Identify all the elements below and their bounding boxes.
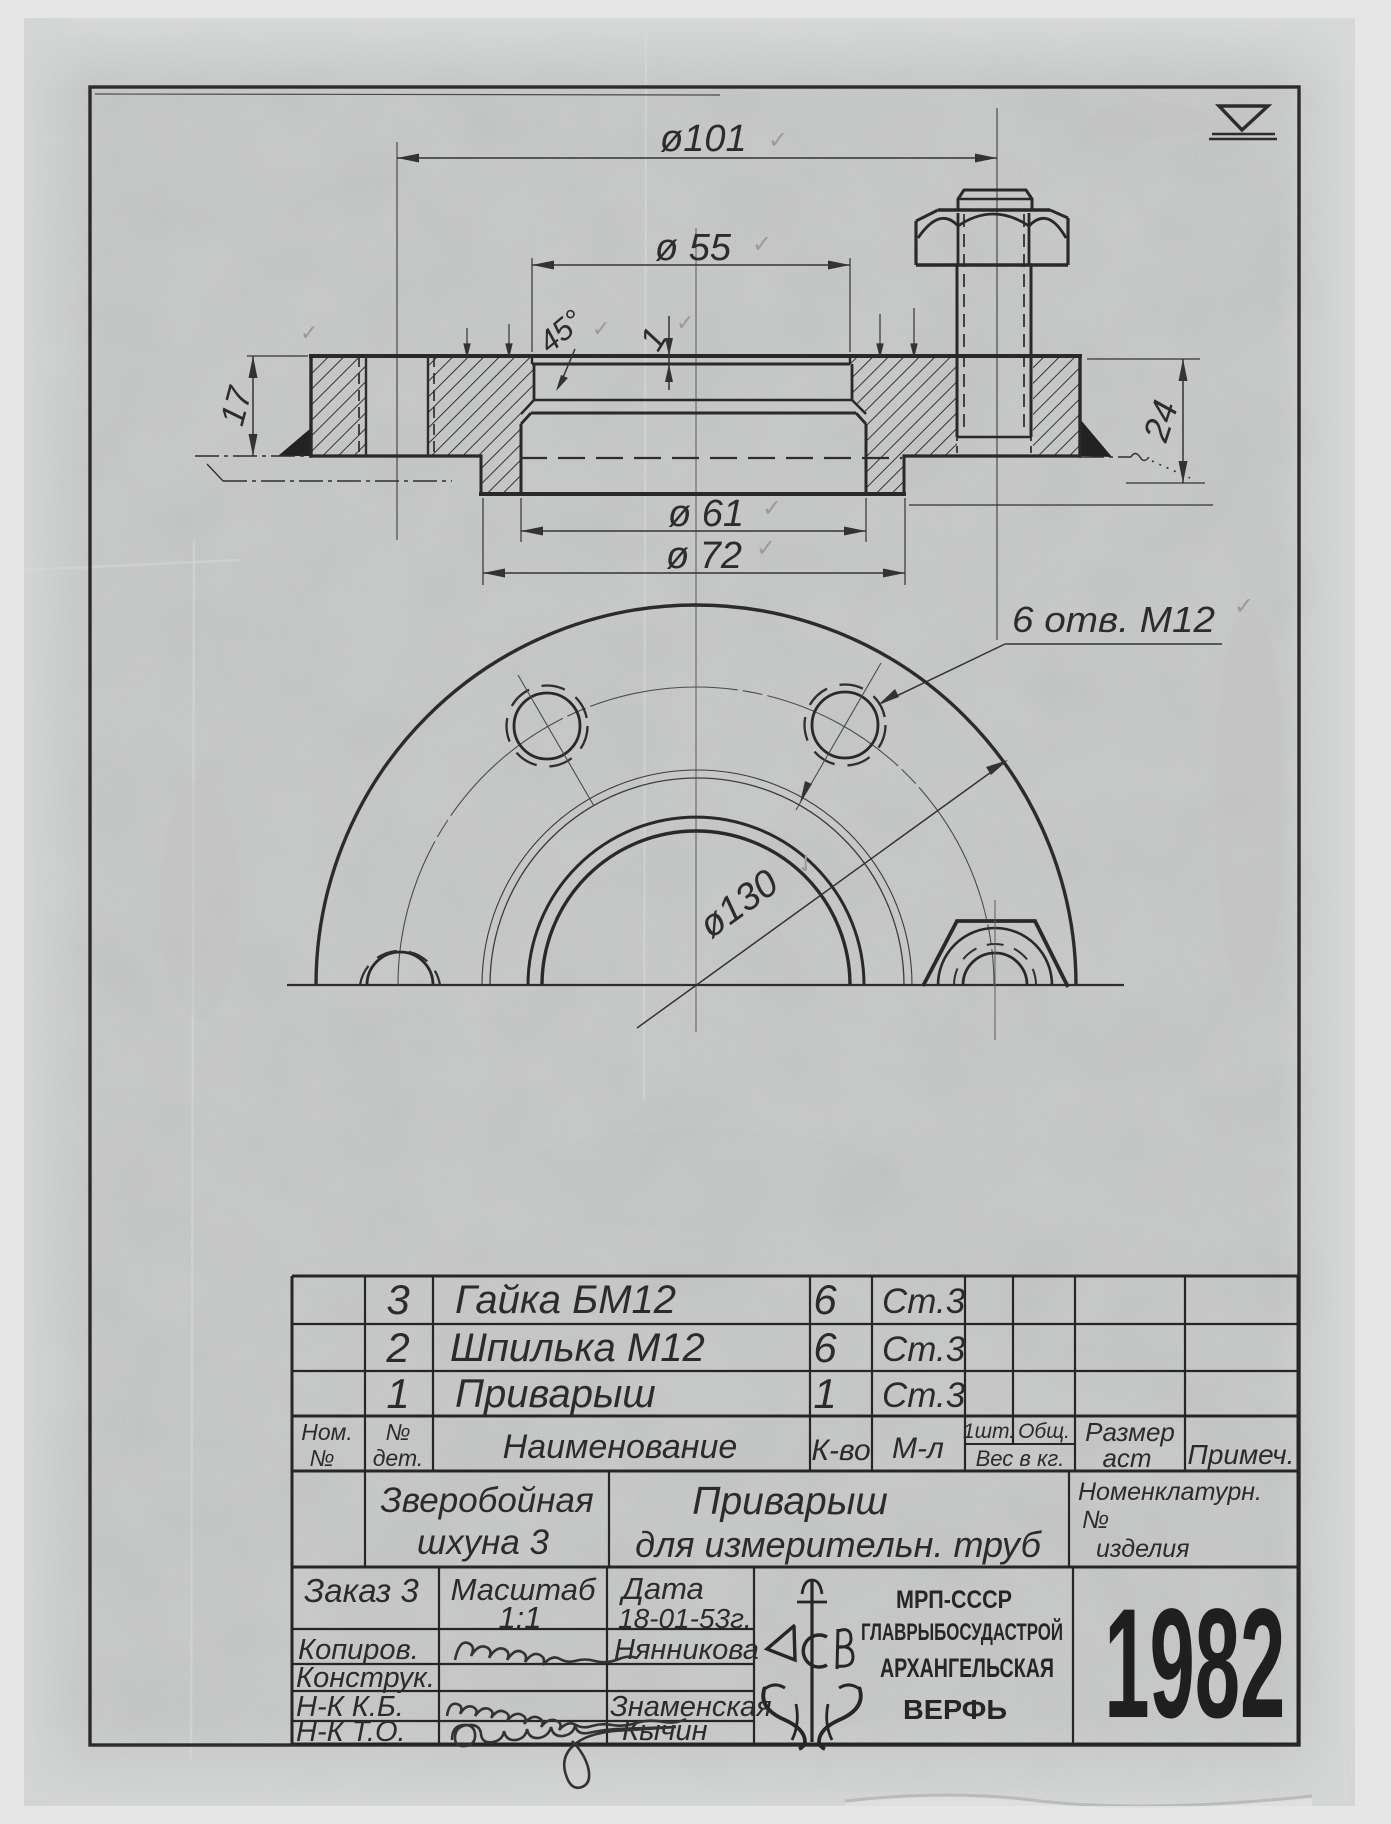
svg-text:✓: ✓ [762, 495, 782, 522]
svg-text:1шт.: 1шт. [963, 1420, 1015, 1443]
svg-text:✓: ✓ [768, 127, 788, 154]
svg-text:✓: ✓ [676, 310, 694, 335]
svg-text:Примеч.: Примеч. [1188, 1439, 1295, 1470]
svg-text:Конструк.: Конструк. [296, 1662, 435, 1694]
svg-text:Гайка БМ12: Гайка БМ12 [455, 1278, 676, 1322]
svg-text:1: 1 [386, 1370, 409, 1417]
svg-text:№: № [310, 1445, 335, 1471]
svg-text:Ст.3: Ст.3 [882, 1376, 966, 1415]
svg-text:Ст.3: Ст.3 [882, 1282, 966, 1321]
svg-text:✓: ✓ [300, 320, 318, 345]
svg-text:ø 55: ø 55 [655, 227, 732, 269]
svg-text:№: № [386, 1419, 411, 1445]
svg-text:М-л: М-л [892, 1432, 944, 1465]
svg-text:6 отв. М12: 6 отв. М12 [1012, 599, 1215, 640]
svg-text:Нянникова: Нянникова [614, 1634, 759, 1666]
svg-text:Наименование: Наименование [503, 1428, 738, 1466]
svg-text:для измерительн. труб: для измерительн. труб [635, 1524, 1043, 1565]
svg-text:дет.: дет. [373, 1445, 424, 1471]
svg-text:ВЕРФЬ: ВЕРФЬ [903, 1694, 1007, 1725]
svg-text:18-01-53г.: 18-01-53г. [618, 1603, 752, 1634]
svg-text:Номенклатурн.: Номенклатурн. [1078, 1478, 1262, 1506]
svg-text:✓: ✓ [756, 535, 776, 562]
svg-text:Приварыш: Приварыш [692, 1480, 888, 1523]
svg-text:✓: ✓ [592, 316, 610, 341]
svg-text:аст: аст [1102, 1443, 1151, 1473]
svg-text:№: № [1082, 1506, 1109, 1534]
svg-text:Шпилька М12: Шпилька М12 [450, 1326, 705, 1370]
svg-text:Вес в кг.: Вес в кг. [976, 1446, 1065, 1471]
svg-text:6: 6 [813, 1324, 837, 1371]
svg-text:изделия: изделия [1096, 1535, 1190, 1563]
svg-text:ГЛАВРЫБОСУДАСТРОЙ: ГЛАВРЫБОСУДАСТРОЙ [861, 1618, 1063, 1646]
svg-text:МРП-СССР: МРП-СССР [896, 1586, 1012, 1614]
svg-text:Дата: Дата [619, 1571, 704, 1606]
svg-text:Общ.: Общ. [1018, 1420, 1070, 1443]
svg-text:2: 2 [385, 1324, 409, 1371]
svg-text:1:1: 1:1 [498, 1600, 541, 1635]
svg-text:Приварыш: Приварыш [455, 1372, 656, 1416]
svg-text:Зверобойная: Зверобойная [380, 1481, 593, 1520]
svg-text:Ном.: Ном. [301, 1419, 353, 1445]
svg-text:Н-К Т.О.: Н-К Т.О. [296, 1716, 406, 1748]
svg-text:1: 1 [813, 1370, 836, 1417]
svg-text:ø 61: ø 61 [668, 493, 744, 535]
svg-text:Кычин: Кычин [622, 1715, 708, 1747]
svg-text:1982: 1982 [1104, 1575, 1285, 1750]
svg-text:✓: ✓ [752, 231, 772, 258]
svg-text:✓: ✓ [1234, 593, 1254, 620]
svg-text:К-во: К-во [811, 1434, 870, 1467]
svg-text:Ст.3: Ст.3 [882, 1330, 966, 1369]
svg-text:6: 6 [813, 1276, 837, 1323]
svg-text:Заказ 3: Заказ 3 [304, 1572, 419, 1609]
svg-text:АРХАНГЕЛЬСКАЯ: АРХАНГЕЛЬСКАЯ [880, 1653, 1054, 1683]
svg-text:шхуна 3: шхуна 3 [417, 1523, 550, 1562]
svg-text:ø101: ø101 [660, 118, 747, 160]
svg-text:3: 3 [386, 1276, 409, 1323]
svg-text:ø 72: ø 72 [666, 535, 742, 577]
